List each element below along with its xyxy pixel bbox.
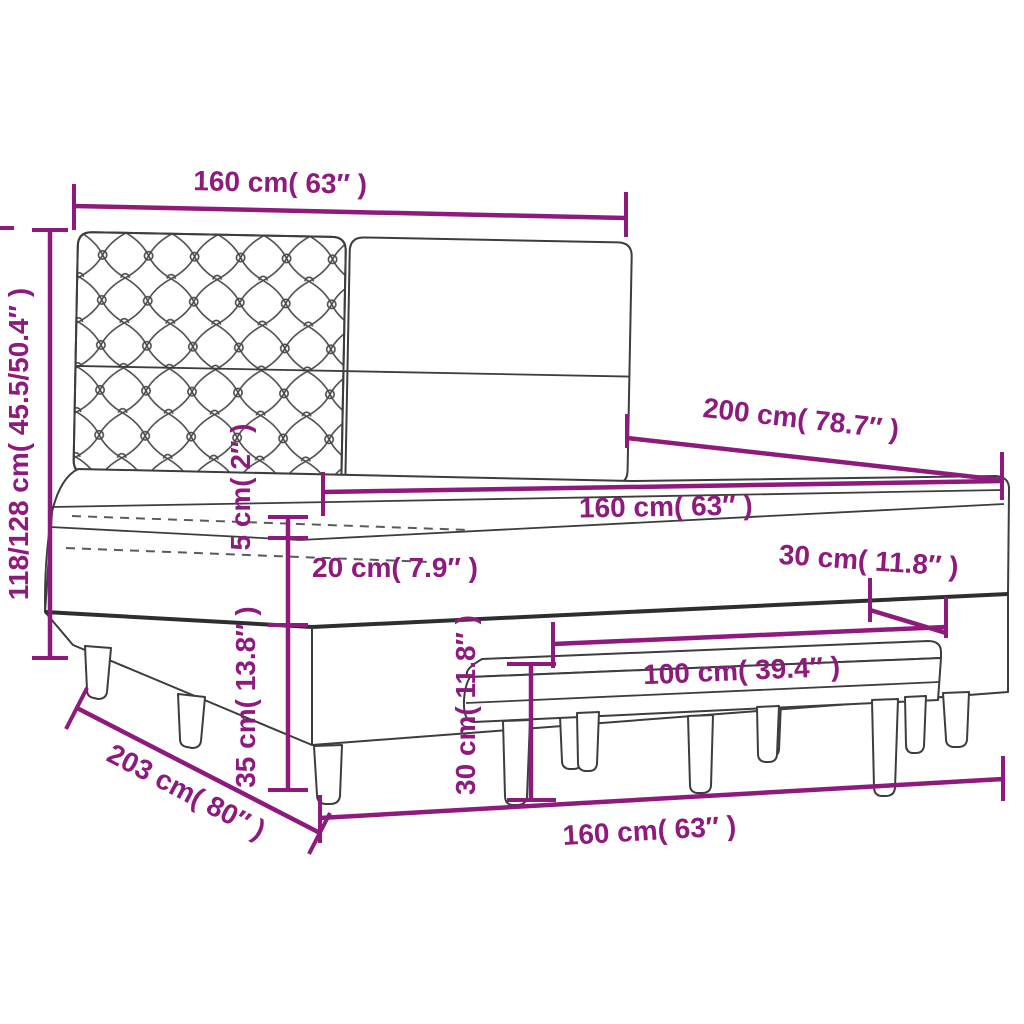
dim-label-mattress-height: 20 cm( 7.9″ ) <box>312 552 478 583</box>
dim-label-total-height: 118/128 cm( 45.5/50.4″ ) <box>3 288 34 600</box>
bed-leg <box>85 646 111 699</box>
bench-leg <box>905 696 926 753</box>
dim-label-bench-height: 30 cm( 11.8″ ) <box>450 615 481 795</box>
bench-leg <box>503 720 530 805</box>
dim-label-base-height: 35 cm( 13.8″ ) <box>230 606 261 788</box>
headboard <box>73 232 632 485</box>
bench-leg <box>688 715 713 793</box>
dim-label-headboard-width: 160 cm( 63″ ) <box>193 165 367 200</box>
dim-label-bed-length: 200 cm( 78.7″ ) <box>701 392 900 445</box>
headboard-panel-left <box>73 232 346 479</box>
bench-leg <box>872 699 898 796</box>
dim-headboard-width: 160 cm( 63″ ) <box>74 165 626 237</box>
dim-label-mattress-width: 160 cm( 63″ ) <box>579 489 753 523</box>
bed-drawing <box>45 232 1009 805</box>
dimension-diagram: 160 cm( 63″ ) 118/128 cm( 45.5/50.4″ ) 2… <box>0 0 1024 1024</box>
headboard-panel-right <box>345 237 632 484</box>
bench-leg <box>757 706 779 762</box>
dim-label-bed-width-bottom: 160 cm( 63″ ) <box>562 810 737 851</box>
dim-label-topper-height: 5 cm( 2″ ) <box>225 423 256 550</box>
diagram-canvas: 160 cm( 63″ ) 118/128 cm( 45.5/50.4″ ) 2… <box>0 0 1024 1024</box>
bed-leg <box>943 692 969 747</box>
dim-bed-width-bottom: 160 cm( 63″ ) <box>320 756 1003 851</box>
bench-leg <box>577 712 599 771</box>
bed-leg <box>178 694 205 748</box>
